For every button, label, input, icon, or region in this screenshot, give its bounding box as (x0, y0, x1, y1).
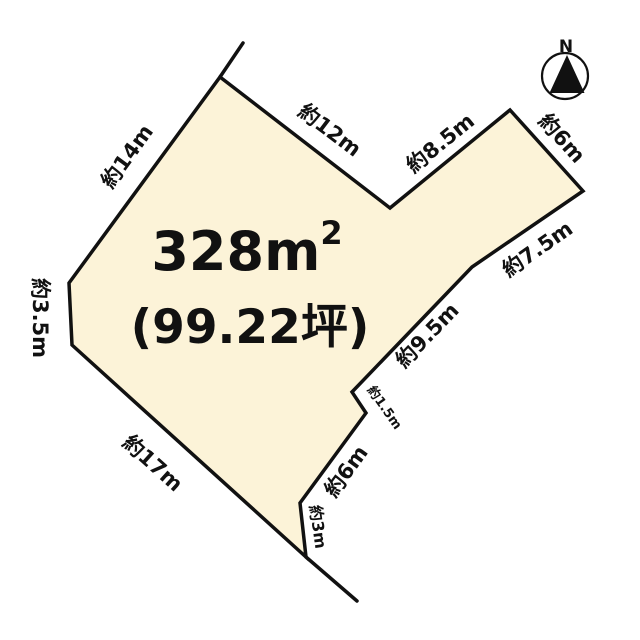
dimension-label-east-step: 約1.5m (364, 383, 406, 433)
boundary-extension-top (220, 43, 243, 77)
area-square-meters-superscript: 2 (320, 214, 342, 252)
dimension-label-southeast-lower: 約3m (306, 504, 331, 550)
area-square-meters-main: 328m (151, 220, 320, 283)
land-plot-diagram: N 約14m 約12m 約8.5m 約6m 約7.5m 約9.5m 約1.5m … (0, 0, 640, 640)
area-tsubo: (99.22坪) (131, 300, 370, 355)
north-compass: N (542, 37, 588, 99)
diagram-canvas: N 約14m 約12m 約8.5m 約6m 約7.5m 約9.5m 約1.5m … (0, 0, 640, 640)
dimension-label-west: 約3.5m (28, 278, 52, 358)
area-square-meters: 328m2 (151, 214, 342, 283)
boundary-extension-bottom (306, 557, 357, 601)
